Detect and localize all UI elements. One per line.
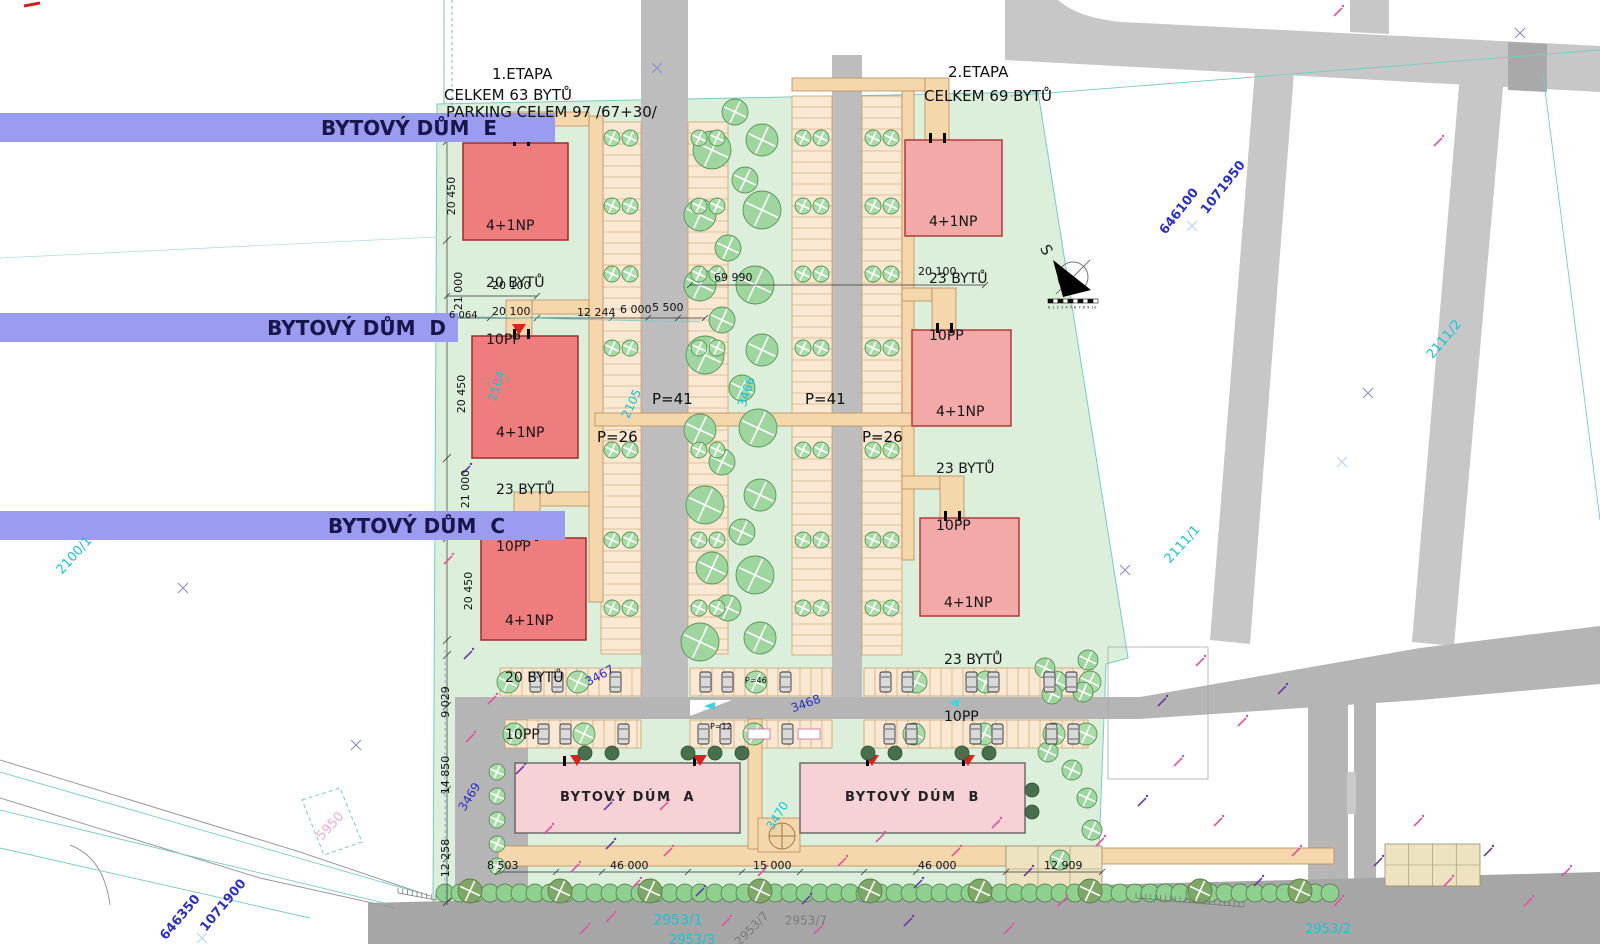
parked-car bbox=[780, 672, 791, 692]
building-a-label: BYTOVÝ DÚM A bbox=[515, 763, 740, 833]
parked-car bbox=[782, 724, 793, 744]
parked-car bbox=[618, 724, 629, 744]
survey-point bbox=[922, 877, 924, 879]
survey-point bbox=[1492, 845, 1494, 847]
building-t2-text: 4+1NP 23 BYTŮ 10PP bbox=[936, 365, 994, 574]
road-south-a bbox=[1308, 688, 1348, 905]
survey-point bbox=[1570, 865, 1572, 867]
survey-point bbox=[614, 838, 616, 840]
stage2-subtitle1: CELKEM 69 BYTŮ bbox=[924, 88, 1052, 105]
survey-point bbox=[1342, 895, 1344, 897]
parking-p41-left: P=41 bbox=[652, 391, 693, 408]
building-t1-parking: 10PP bbox=[929, 327, 987, 346]
road-top-stub bbox=[1350, 0, 1389, 34]
cadastral-line bbox=[0, 237, 437, 258]
stage1-subtitle2: PARKING CELEM 97 /67+30/ bbox=[446, 104, 657, 121]
building-c-floors: 4+1NP bbox=[505, 612, 563, 631]
stage2-title: 2.ETAPA bbox=[948, 64, 1008, 81]
walkway bbox=[589, 116, 603, 602]
road-outline-branch bbox=[70, 845, 110, 905]
stall-marker-box bbox=[748, 729, 770, 739]
dim-left-3: 20 450 bbox=[456, 375, 468, 414]
bar-bytovy-dum-d: BYTOVÝ DŮM D bbox=[0, 313, 458, 342]
bush bbox=[861, 746, 875, 760]
survey-point bbox=[1166, 695, 1168, 697]
bush bbox=[888, 746, 902, 760]
building-t1-text: 4+1NP 23 BYTŮ 10PP bbox=[929, 175, 987, 384]
entrance-tick bbox=[943, 133, 946, 143]
road-branch-east bbox=[1412, 74, 1504, 646]
survey-point bbox=[672, 845, 674, 847]
building-d-units: 23 BYTŮ bbox=[496, 481, 554, 500]
survey-point bbox=[1452, 875, 1454, 877]
dim-46000-a: 46 000 bbox=[610, 860, 649, 872]
survey-point bbox=[1204, 655, 1206, 657]
parking-strip bbox=[862, 96, 902, 655]
survey-mark bbox=[1174, 758, 1182, 766]
survey-point bbox=[1104, 835, 1106, 837]
building-t1-floors: 4+1NP bbox=[929, 213, 987, 232]
scale-bar-segment bbox=[1068, 299, 1073, 303]
survey-point bbox=[1066, 895, 1068, 897]
dim-6000: 6 000 bbox=[620, 304, 652, 316]
parking-p26-left: P=26 bbox=[597, 429, 638, 446]
dim-5500: 5 500 bbox=[652, 302, 684, 314]
building-t2-floors: 4+1NP bbox=[936, 403, 994, 422]
dim-20100-b: 20 100 bbox=[492, 306, 531, 318]
parked-car bbox=[906, 724, 917, 744]
entrance-tick bbox=[929, 133, 932, 143]
road-branch-west bbox=[1210, 70, 1294, 644]
survey-point bbox=[960, 845, 962, 847]
survey-mark bbox=[1238, 718, 1246, 726]
bush bbox=[708, 746, 722, 760]
survey-mark bbox=[1434, 138, 1442, 146]
parking-p41-right: P=41 bbox=[805, 391, 846, 408]
parked-car bbox=[1044, 672, 1055, 692]
bush bbox=[578, 746, 592, 760]
walkway bbox=[902, 476, 940, 489]
survey-mark bbox=[1196, 658, 1204, 666]
survey-point bbox=[1422, 815, 1424, 817]
parking-strip bbox=[792, 96, 832, 655]
dim-8503: 8 503 bbox=[487, 860, 519, 872]
bush bbox=[735, 746, 749, 760]
stage1-title: 1.ETAPA bbox=[492, 66, 552, 83]
survey-point bbox=[640, 877, 642, 879]
stage1-subtitle1: CELKEM 63 BYTŮ bbox=[444, 87, 572, 104]
parcel-2953-2: 2953/2 bbox=[1305, 923, 1351, 937]
survey-point bbox=[1246, 715, 1248, 717]
survey-point bbox=[496, 693, 498, 695]
survey-point bbox=[579, 861, 581, 863]
dim-15000: 15 000 bbox=[753, 860, 792, 872]
walkway bbox=[902, 288, 932, 301]
road-outline-1 bbox=[0, 760, 430, 896]
parked-car bbox=[700, 672, 711, 692]
bush bbox=[1025, 783, 1039, 797]
building-e-parking: 10PP bbox=[486, 331, 544, 350]
survey-point bbox=[1442, 135, 1444, 137]
survey-point bbox=[1262, 875, 1264, 877]
building-t3-text: 4+1NP 23 BYTŮ 10PP bbox=[944, 556, 1002, 765]
survey-mark bbox=[1138, 798, 1146, 806]
survey-point bbox=[452, 553, 454, 555]
dim-6064: 6 064 bbox=[449, 310, 478, 321]
building-d-parking: 10PP bbox=[496, 538, 554, 557]
scale-bar-segment bbox=[1073, 299, 1078, 303]
building-t2-parking: 10PP bbox=[936, 517, 994, 536]
road-internal-b bbox=[832, 55, 862, 719]
dim-left-5: 20 450 bbox=[463, 572, 475, 611]
cadastral-line bbox=[0, 772, 420, 893]
survey-point bbox=[1032, 865, 1034, 867]
building-c-units: 20 BYTŮ bbox=[505, 669, 563, 688]
road-median-island bbox=[1347, 772, 1356, 814]
dim-bl-3: 12 258 bbox=[440, 839, 452, 878]
parked-car bbox=[1066, 672, 1077, 692]
scale-bar-segment bbox=[1083, 299, 1088, 303]
hedge bbox=[1321, 884, 1339, 902]
dim-12909: 12 909 bbox=[1044, 860, 1083, 872]
building-t3-parking: 10PP bbox=[944, 708, 1002, 727]
survey-point bbox=[470, 463, 472, 465]
stall-marker-box bbox=[798, 729, 820, 739]
parking-p12: P=12 bbox=[710, 723, 732, 732]
scale-bar-segment bbox=[1088, 299, 1093, 303]
scale-bar-segment bbox=[1053, 299, 1058, 303]
parked-car bbox=[880, 672, 891, 692]
bar-c-label: BYTOVÝ DŮM C bbox=[328, 514, 505, 538]
dim-20100-c: 20 100 bbox=[918, 266, 957, 278]
parked-car bbox=[698, 724, 709, 744]
survey-point bbox=[1532, 895, 1534, 897]
survey-point bbox=[912, 915, 914, 917]
building-c-text: 4+1NP 20 BYTŮ 10PP bbox=[505, 574, 563, 783]
parked-car bbox=[1046, 724, 1057, 744]
building-b-label: BYTOVÝ DÚM B bbox=[800, 763, 1025, 833]
walkway bbox=[792, 78, 925, 91]
cadastral-line bbox=[0, 848, 310, 918]
survey-point bbox=[1012, 923, 1014, 925]
survey-mark bbox=[1214, 818, 1222, 826]
red-mark bbox=[24, 3, 40, 6]
parked-car bbox=[1068, 724, 1079, 744]
survey-mark bbox=[1484, 848, 1492, 856]
building-t3-units: 23 BYTŮ bbox=[944, 651, 1002, 670]
bush bbox=[1025, 805, 1039, 819]
survey-point bbox=[588, 923, 590, 925]
parked-car bbox=[722, 672, 733, 692]
survey-point bbox=[730, 915, 732, 917]
dim-12244: 12 244 bbox=[577, 307, 616, 319]
scale-bar-numbers: 0 1 2 3 4 5 6 7 8 9 10 bbox=[1048, 306, 1097, 310]
survey-mark bbox=[1414, 818, 1422, 826]
survey-mark bbox=[1334, 8, 1342, 16]
survey-point bbox=[472, 648, 474, 650]
dim-left-4: 21 000 bbox=[460, 470, 472, 509]
road-south-b bbox=[1354, 688, 1376, 905]
survey-point bbox=[474, 731, 476, 733]
scale-bar-segment bbox=[1058, 299, 1063, 303]
dim-bl-1: 9 029 bbox=[440, 686, 452, 718]
scale-bar-segment bbox=[1063, 299, 1068, 303]
building-c-parking: 10PP bbox=[505, 726, 563, 745]
dim-left-2: 21 000 bbox=[453, 272, 465, 311]
survey-point bbox=[1382, 855, 1384, 857]
parked-car bbox=[884, 724, 895, 744]
building-e-floors: 4+1NP bbox=[486, 217, 544, 236]
bar-d-label: BYTOVÝ DŮM D bbox=[267, 316, 446, 340]
survey-point bbox=[1182, 755, 1184, 757]
parking-p46: P=46 bbox=[745, 677, 767, 686]
dim-bl-2: 14 850 bbox=[440, 756, 452, 795]
parcel-2953-7-a: 2953/7 bbox=[785, 914, 827, 927]
parcel-2953-3: 2953/3 bbox=[669, 934, 715, 944]
survey-point bbox=[1222, 815, 1224, 817]
dim-20100-a: 20 100 bbox=[492, 280, 531, 292]
survey-point bbox=[810, 893, 812, 895]
survey-point bbox=[1342, 5, 1344, 7]
dim-69990: 69 990 bbox=[714, 272, 753, 284]
building-d-floors: 4+1NP bbox=[496, 424, 554, 443]
survey-point bbox=[1146, 795, 1148, 797]
building-t2-units: 23 BYTŮ bbox=[936, 460, 994, 479]
scale-bar-segment bbox=[1093, 299, 1098, 303]
survey-point bbox=[1300, 845, 1302, 847]
parking-p26-right: P=26 bbox=[862, 429, 903, 446]
scale-bar-segment bbox=[1078, 299, 1083, 303]
site-plan: 1.ETAPA CELKEM 63 BYTŮ PARKING CELEM 97 … bbox=[0, 0, 1600, 944]
parked-car bbox=[902, 672, 913, 692]
survey-point bbox=[846, 855, 848, 857]
survey-point bbox=[1286, 683, 1288, 685]
scale-bar-segment bbox=[1048, 299, 1053, 303]
dim-left-1: 20 450 bbox=[446, 177, 458, 216]
survey-point bbox=[704, 885, 706, 887]
cadastral-line bbox=[1543, 74, 1600, 520]
building-t3-floors: 4+1NP bbox=[944, 594, 1002, 613]
parcel-2953-1: 2953/1 bbox=[653, 913, 702, 928]
dim-46000-b: 46 000 bbox=[918, 860, 957, 872]
survey-point bbox=[614, 911, 616, 913]
bush bbox=[681, 746, 695, 760]
bush bbox=[605, 746, 619, 760]
building-d-text: 4+1NP 23 BYTŮ 10PP bbox=[496, 386, 554, 595]
road-end-cap bbox=[1508, 42, 1547, 92]
